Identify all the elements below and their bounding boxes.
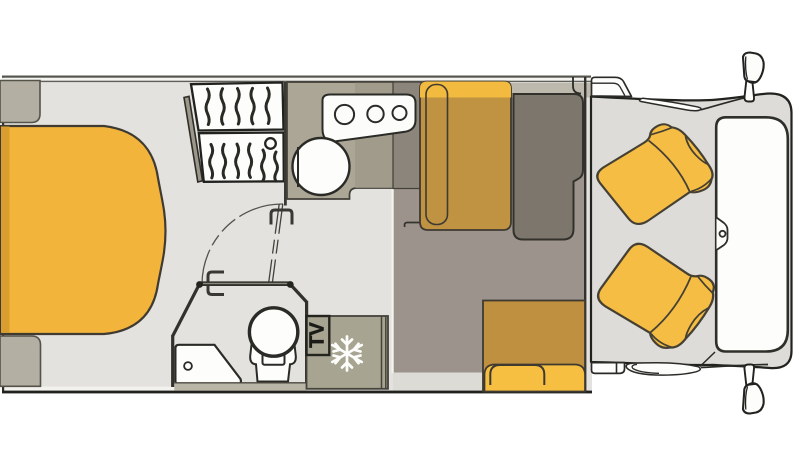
svg-text:TV: TV — [307, 322, 329, 348]
